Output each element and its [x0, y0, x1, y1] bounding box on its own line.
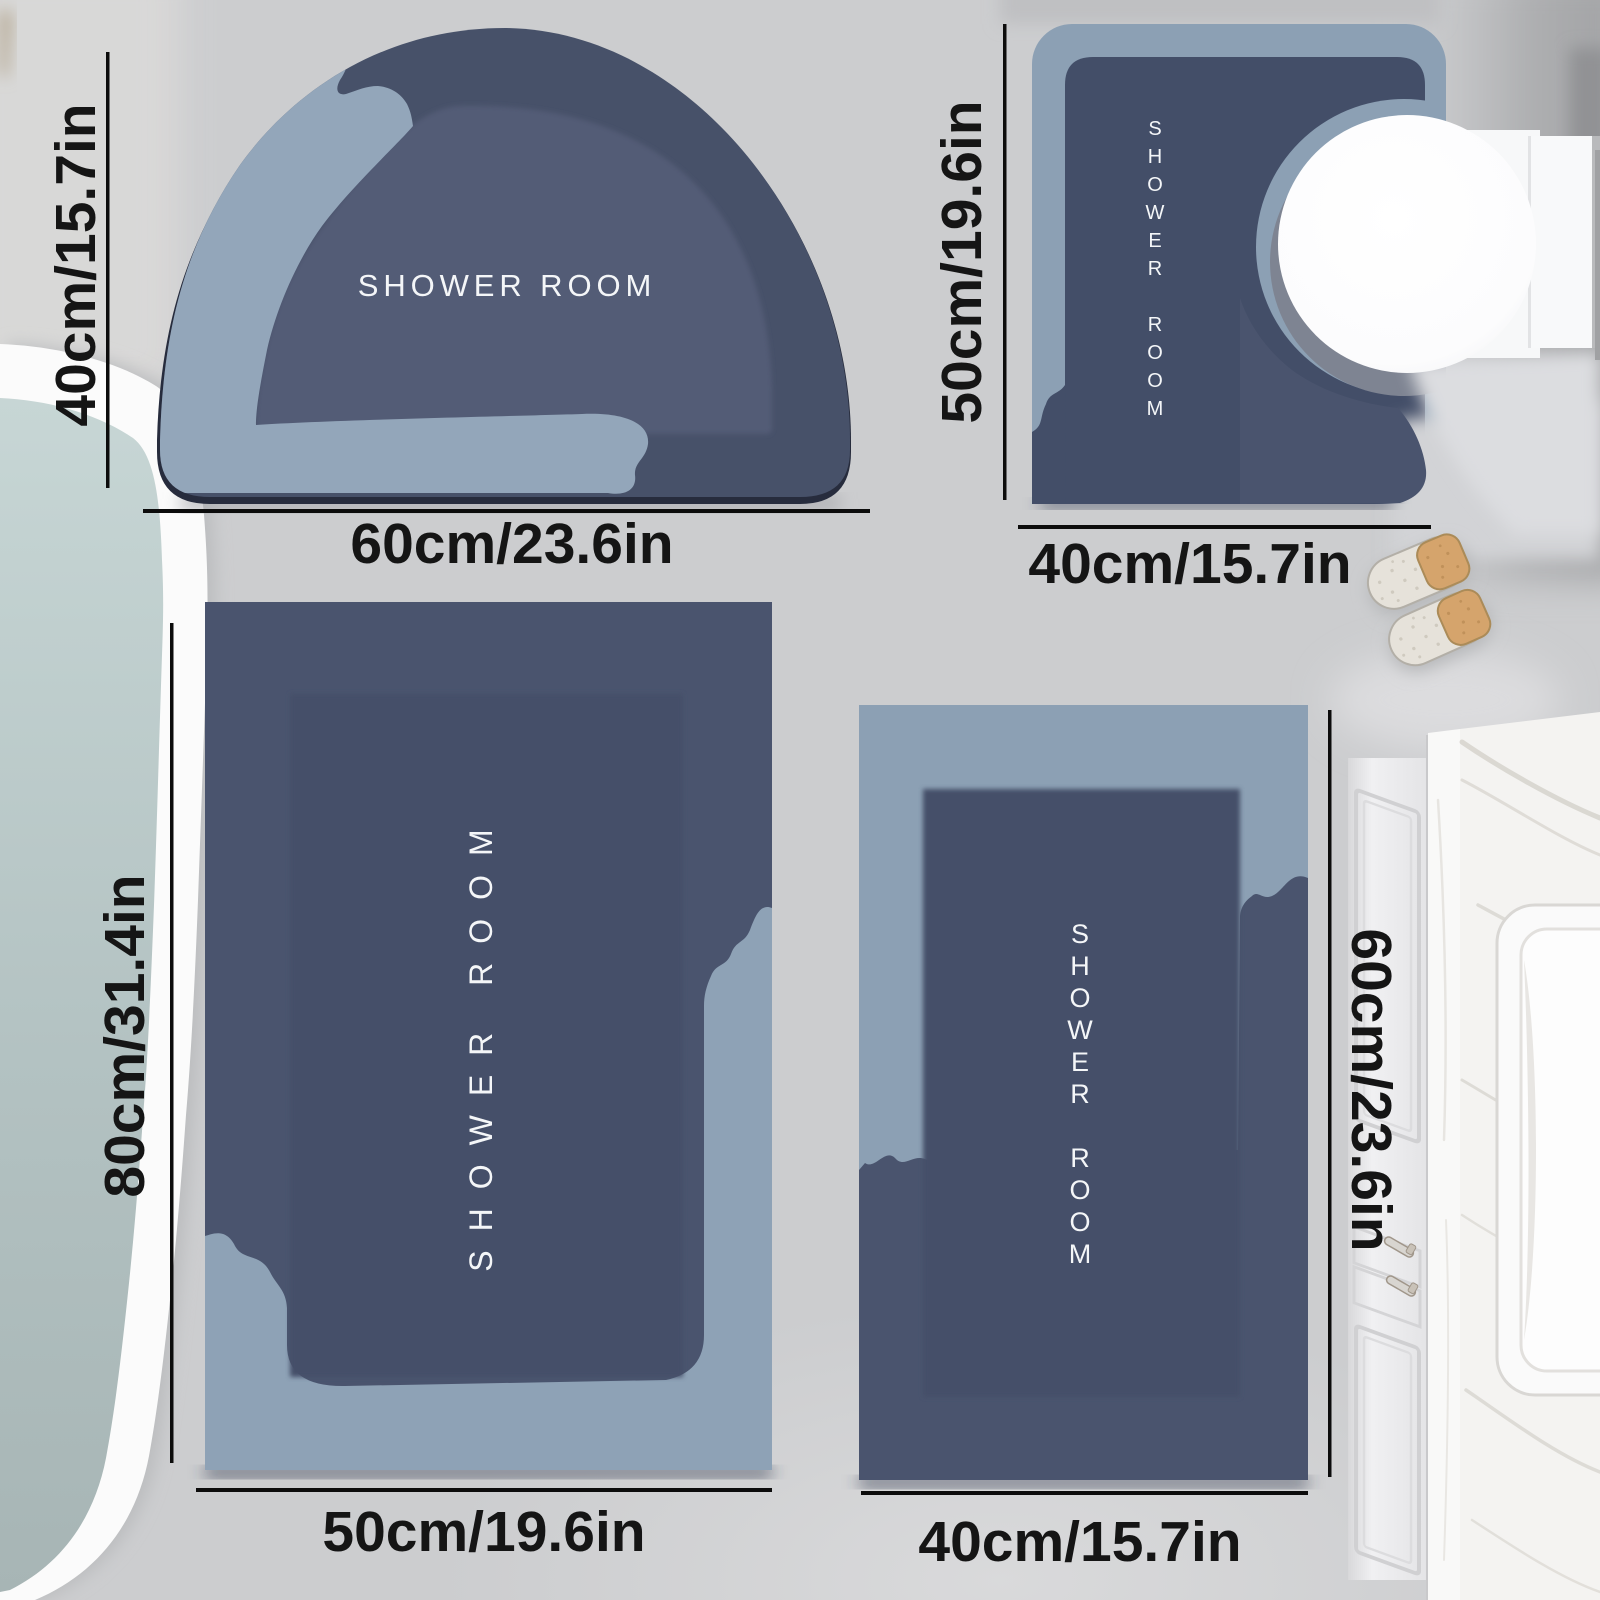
svg-text:E: E — [1148, 230, 1161, 252]
svg-text:50cm/19.6in: 50cm/19.6in — [930, 100, 994, 423]
svg-text:S: S — [1071, 919, 1089, 949]
svg-text:R: R — [1070, 1079, 1090, 1109]
svg-text:M: M — [1069, 1239, 1092, 1269]
svg-text:O: O — [1147, 342, 1163, 364]
svg-text:E: E — [1071, 1047, 1089, 1077]
svg-text:40cm/15.7in: 40cm/15.7in — [44, 103, 108, 426]
svg-text:W: W — [1146, 202, 1165, 224]
svg-text:H: H — [1070, 951, 1090, 981]
svg-text:O: O — [1069, 1207, 1090, 1237]
svg-text:M: M — [1147, 398, 1164, 420]
svg-text:S: S — [1148, 118, 1161, 140]
svg-text:50cm/19.6in: 50cm/19.6in — [322, 1500, 645, 1564]
svg-text:SHOWER ROOM: SHOWER ROOM — [358, 268, 656, 303]
svg-text:O: O — [1147, 174, 1163, 196]
svg-text:R: R — [1148, 314, 1162, 336]
svg-text:60cm/23.6in: 60cm/23.6in — [1339, 928, 1403, 1251]
svg-text:O: O — [1147, 370, 1163, 392]
svg-text:SHOWER ROOM: SHOWER ROOM — [463, 810, 499, 1271]
svg-text:60cm/23.6in: 60cm/23.6in — [350, 512, 673, 576]
svg-text:O: O — [1069, 1175, 1090, 1205]
svg-text:R: R — [1148, 258, 1162, 280]
svg-text:H: H — [1148, 146, 1162, 168]
svg-text:40cm/15.7in: 40cm/15.7in — [918, 1510, 1241, 1574]
svg-text:R: R — [1070, 1143, 1090, 1173]
svg-text:O: O — [1069, 983, 1090, 1013]
svg-text:40cm/15.7in: 40cm/15.7in — [1028, 532, 1351, 596]
svg-text:80cm/31.4in: 80cm/31.4in — [93, 874, 157, 1197]
svg-text:W: W — [1067, 1015, 1093, 1045]
